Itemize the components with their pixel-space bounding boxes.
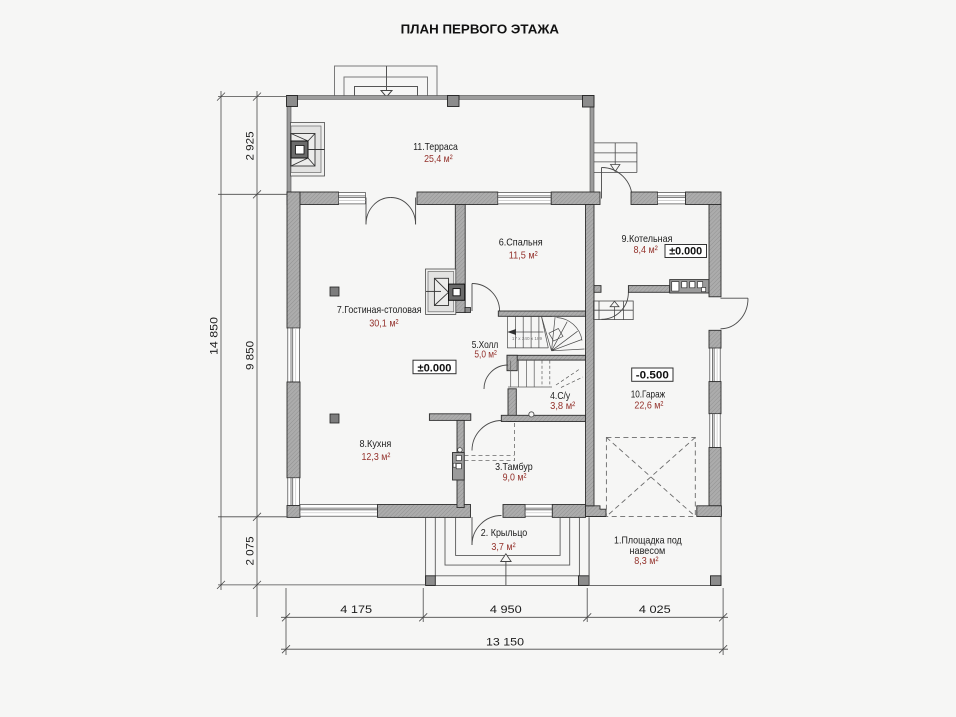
svg-text:6.Спальня: 6.Спальня <box>499 237 543 249</box>
svg-text:2. Крыльцо: 2. Крыльцо <box>481 527 528 539</box>
svg-text:2 925: 2 925 <box>245 132 257 161</box>
svg-text:±0.000: ±0.000 <box>669 246 702 258</box>
svg-text:2 075: 2 075 <box>245 537 257 566</box>
svg-text:7.Гостиная-столовая: 7.Гостиная-столовая <box>337 304 422 316</box>
svg-text:11,5 м²: 11,5 м² <box>509 250 538 262</box>
svg-text:3,8 м²: 3,8 м² <box>550 400 576 412</box>
svg-text:14 850: 14 850 <box>209 317 221 355</box>
svg-text:13 150: 13 150 <box>486 636 524 648</box>
svg-text:30,1 м²: 30,1 м² <box>369 318 399 330</box>
svg-text:9,0 м²: 9,0 м² <box>503 471 527 483</box>
svg-text:4 950: 4 950 <box>490 604 522 616</box>
svg-text:4 175: 4 175 <box>340 604 372 616</box>
svg-text:22,6 м²: 22,6 м² <box>634 399 663 411</box>
svg-text:9 850: 9 850 <box>245 341 257 370</box>
svg-text:4 025: 4 025 <box>639 604 671 616</box>
svg-text:25,4 м²: 25,4 м² <box>424 153 453 165</box>
svg-text:8,3 м²: 8,3 м² <box>634 555 659 567</box>
svg-text:±0.000: ±0.000 <box>418 362 452 374</box>
svg-text:3,7 м²: 3,7 м² <box>491 541 516 553</box>
svg-text:11.Терраса: 11.Терраса <box>413 141 458 153</box>
svg-text:17 х 240 х 189: 17 х 240 х 189 <box>512 336 543 341</box>
svg-text:-0.500: -0.500 <box>636 370 669 382</box>
svg-text:8,4 м²: 8,4 м² <box>633 244 658 256</box>
svg-text:8.Кухня: 8.Кухня <box>360 438 392 450</box>
svg-text:5,0 м²: 5,0 м² <box>474 348 497 360</box>
svg-text:12,3 м²: 12,3 м² <box>362 451 391 463</box>
svg-text:ПЛАН ПЕРВОГО ЭТАЖА: ПЛАН ПЕРВОГО ЭТАЖА <box>401 22 560 37</box>
